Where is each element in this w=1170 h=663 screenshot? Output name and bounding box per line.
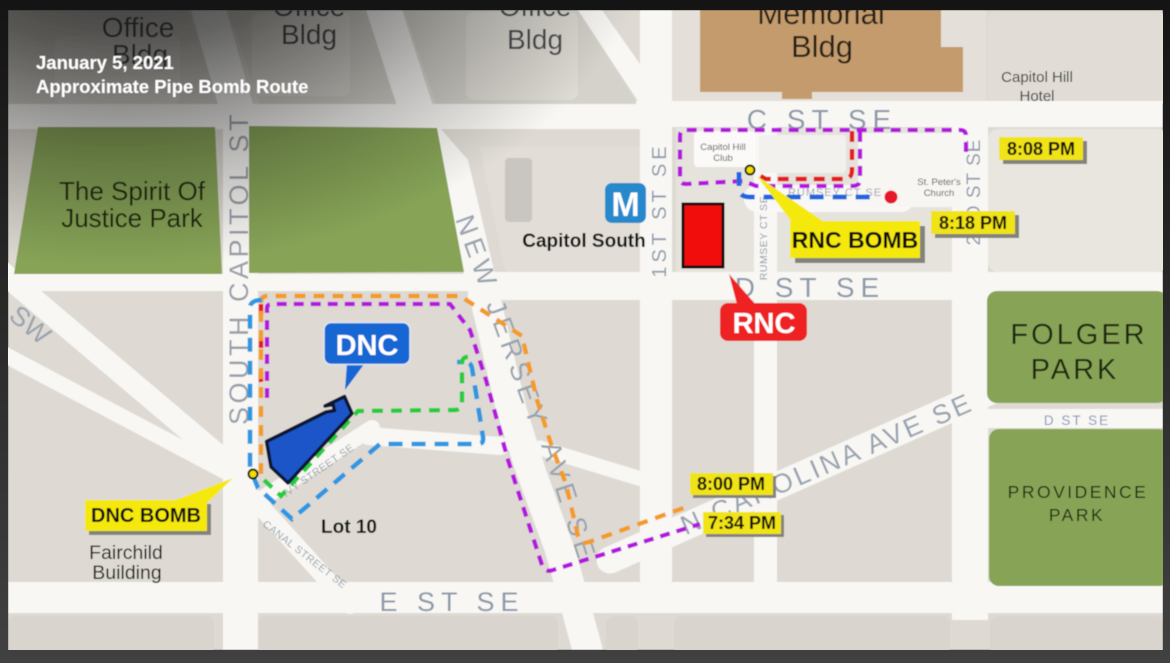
svg-text:Approximate Pipe Bomb Route: Approximate Pipe Bomb Route	[36, 76, 308, 97]
svg-text:January 5, 2021: January 5, 2021	[36, 52, 174, 73]
